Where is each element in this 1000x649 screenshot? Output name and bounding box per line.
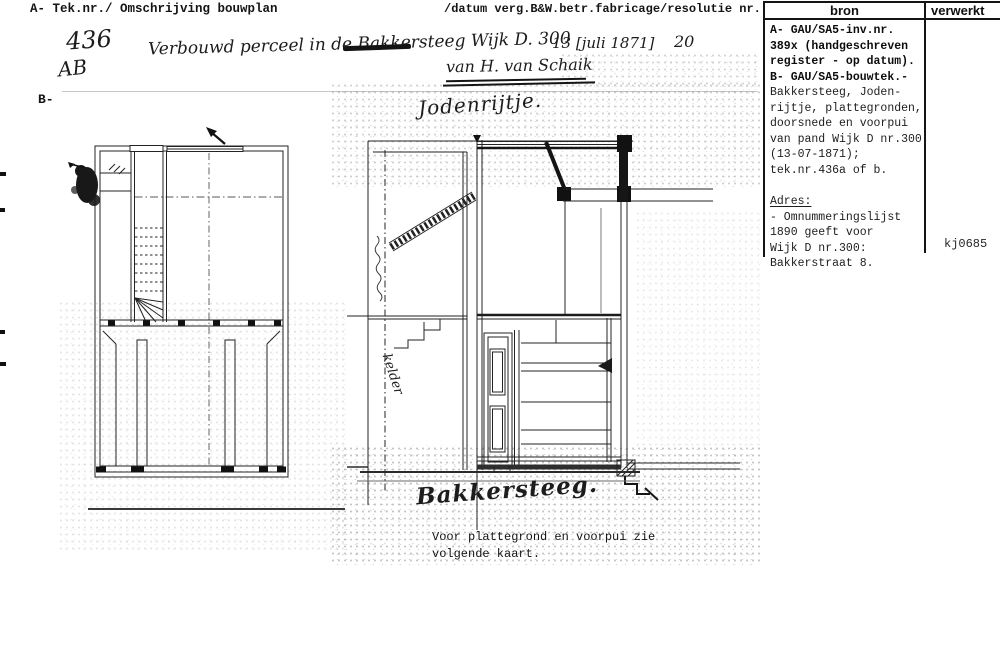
archive-card-page: A- Tek.nr./ Omschrijving bouwplan /datum… [0,0,1000,649]
street-top-line [368,141,633,152]
bron-text-block: A- GAU/SA5-inv.nr.389x (handgeschrevenre… [770,23,1000,272]
plan-interior-walls [100,151,283,466]
bron-text-line: tek.nr.436a of b. [770,163,1000,179]
bron-text-line: register - op datum). [770,54,1000,70]
plan-outer-walls [95,146,288,478]
header-left-label: A- Tek.nr./ Omschrijving bouwplan [30,2,278,16]
bron-text-line: Adres: [770,194,1000,210]
bron-text-line: 389x (handgeschreven [770,39,1000,55]
kelder-steps-profile [394,319,440,348]
handwritten-tek-nr: 436 [65,24,113,55]
panel-header-separator [763,18,1000,20]
plan-lower-room [96,331,286,473]
shop-sill [477,457,621,472]
north-arrow-icon [206,127,225,144]
source-panel: bron verwerkt A- GAU/SA5-inv.nr.389x (ha… [763,0,1000,262]
bron-text-line: rijtje, plattegronden, [770,101,1000,117]
left-bay [347,141,476,505]
bron-text-line [770,178,1000,194]
bron-column-header: bron [765,3,924,18]
handwritten-tek-suffix: AB [57,55,88,82]
card-edge-line [62,91,758,92]
street-label-top: Jodenrijtje. [417,88,543,121]
diagonal-brace [546,142,713,315]
plan-mid-wall [100,320,283,326]
bron-text-line: - Omnummeringslijst [770,210,1000,226]
scan-artifact [0,172,6,176]
verwerkt-column-header: verwerkt [931,3,984,18]
bron-text-line: van pand Wijk D nr.300; [770,132,1000,148]
bron-text-line: A- GAU/SA5-inv.nr. [770,23,1000,39]
drawing-caption-line2: volgende kaart. [432,546,540,563]
handwritten-note-squiggle [375,236,382,301]
panel-left-border [763,1,765,257]
shop-shelving [521,318,612,462]
verwerkt-code: kj0685 [944,237,987,251]
bron-text-line: Bakkersteeg, Joden- [770,85,1000,101]
bron-text-line: (13-07-1871); [770,147,1000,163]
section-b-label: B- [38,92,54,107]
shop-door [484,330,519,468]
scan-artifact [0,362,6,366]
header-right-label: /datum verg.B&W.betr.fabricage/resolutie… [444,2,761,16]
corner-steps [617,460,658,500]
bron-text-line: Bakkerstraat 8. [770,256,1000,272]
plan-stair [135,228,163,324]
applicant-underline-2 [443,81,595,86]
floor-plan-drawing [55,118,355,523]
bron-text-line: B- GAU/SA5-bouwtek.- [770,70,1000,86]
roof-beam [473,135,632,152]
handwritten-description: Verbouwd perceel in de Bakkersteeg Wijk … [148,28,571,59]
handwritten-resolutie-nr: 20 [674,32,694,51]
handwritten-applicant: van H. van Schaik [446,55,593,77]
scan-artifact [0,208,5,212]
handwritten-date: 13 [juli 1871] [552,34,654,52]
bron-text-line: doorsnede en voorpui [770,116,1000,132]
scan-artifact [0,330,5,334]
right-wall [619,150,628,468]
drawing-caption-line1: Voor plattegrond en voorpui zie [432,529,655,546]
